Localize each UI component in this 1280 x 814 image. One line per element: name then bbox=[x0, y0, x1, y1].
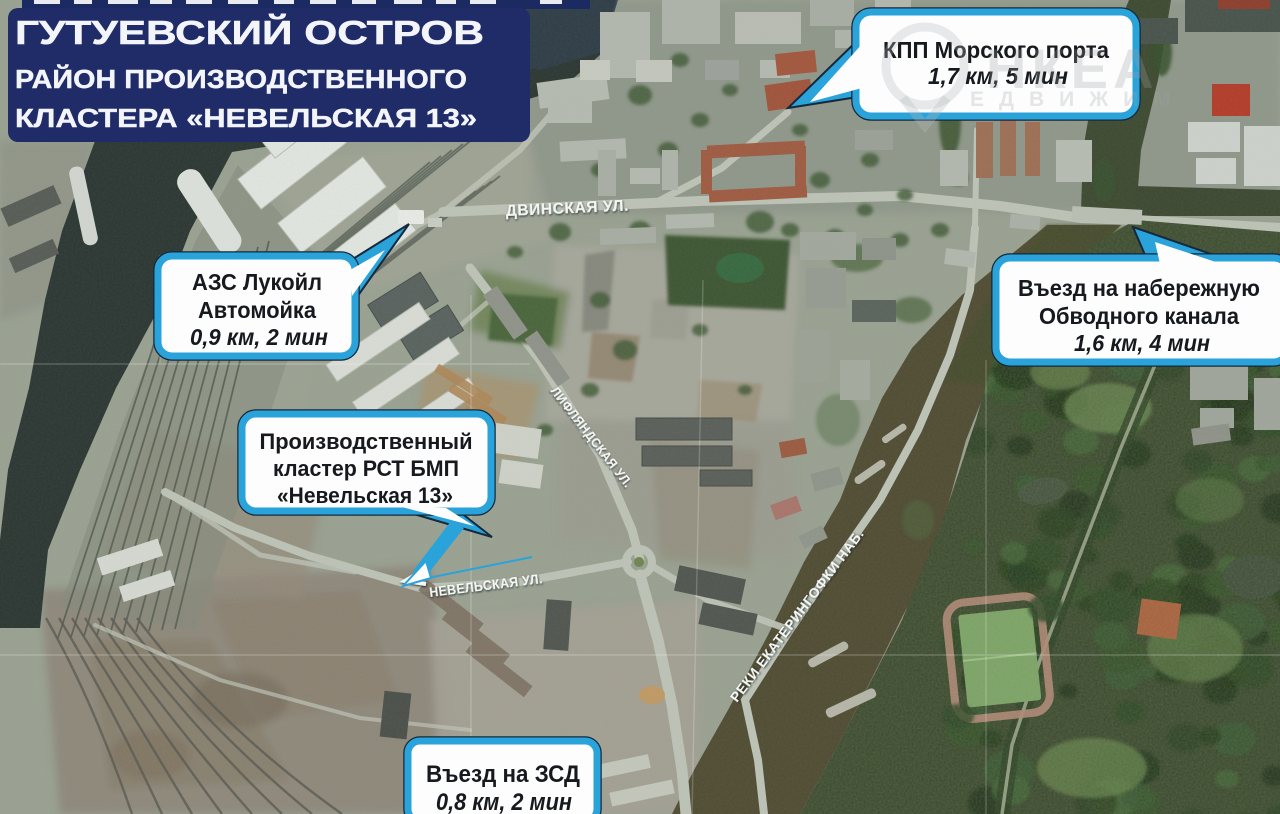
svg-text:АЗС Лукойл: АЗС Лукойл bbox=[192, 269, 322, 295]
svg-text:0,9 км, 2 мин: 0,9 км, 2 мин bbox=[190, 324, 328, 350]
svg-text:Обводного канала: Обводного канала bbox=[1039, 303, 1240, 329]
svg-text:ГУТУЕВСКИЙ ОСТРОВ: ГУТУЕВСКИЙ ОСТРОВ bbox=[15, 13, 484, 51]
svg-text:Въезд на ЗСД: Въезд на ЗСД bbox=[426, 761, 580, 788]
svg-text:Въезд на набережную: Въезд на набережную bbox=[1018, 275, 1260, 301]
svg-text:кластер РСТ БМП: кластер РСТ БМП bbox=[273, 456, 459, 481]
svg-text:Производственный: Производственный bbox=[260, 429, 473, 454]
svg-text:КЛАСТЕРА «НЕВЕЛЬСКАЯ 13»: КЛАСТЕРА «НЕВЕЛЬСКАЯ 13» bbox=[15, 105, 477, 133]
svg-text:«Невельская 13»: «Невельская 13» bbox=[277, 483, 453, 508]
svg-text:Автомойка: Автомойка bbox=[198, 297, 317, 323]
svg-text:0,8 км, 2 мин: 0,8 км, 2 мин bbox=[436, 789, 572, 814]
svg-text:1,6 км, 4 мин: 1,6 км, 4 мин bbox=[1074, 330, 1210, 356]
svg-text:ЕДВИЖИМ: ЕДВИЖИМ bbox=[970, 88, 1186, 111]
svg-text:РАЙОН ПРОИЗВОДСТВЕННОГО: РАЙОН ПРОИЗВОДСТВЕННОГО bbox=[15, 64, 467, 94]
